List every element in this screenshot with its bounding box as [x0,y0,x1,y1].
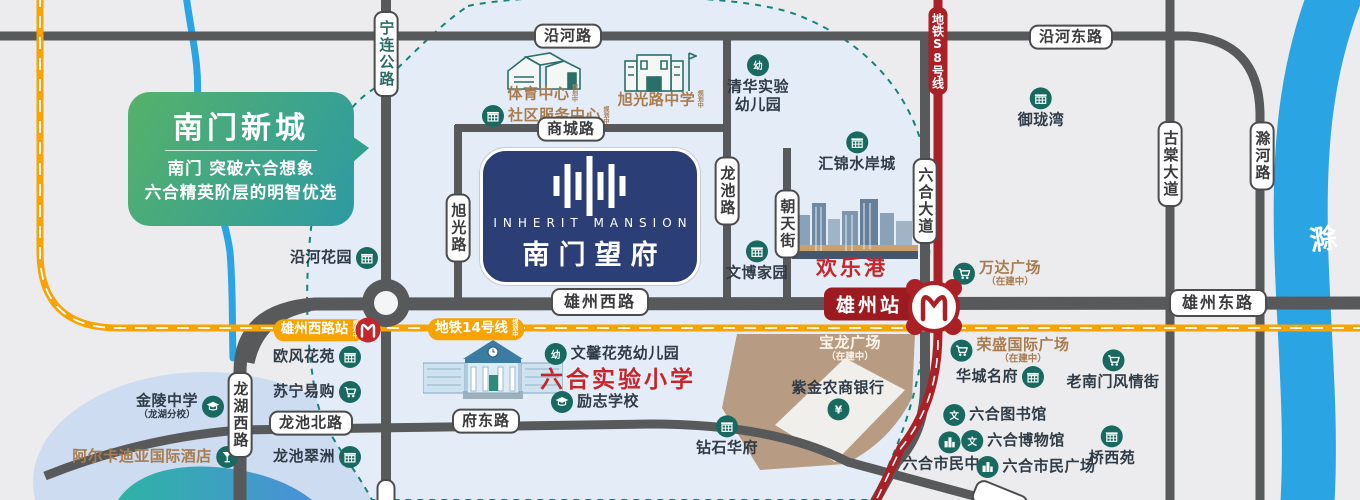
landmark-name: 旭光路中学 [618,91,696,108]
landmark-label-group: 励志学校 [577,393,639,410]
landmark-name: 文馨花苑幼儿园 [571,345,680,362]
landmark-label-group: 六合实验小学 [540,367,696,393]
road-label: 龙湖西路 [228,372,253,458]
kindergarten-icon: 幼 [747,54,769,76]
landmark-name: 六合博物馆 [987,432,1065,449]
map-landmark: 幼清华实验幼儿园 [727,54,789,114]
landmark-label-group: 龙池翠洲 [273,448,335,465]
map-landmark: 沿河花园 [290,247,378,269]
landmark-name-line2: 幼儿园 [735,97,782,114]
map-landmark: 华城名府 [956,366,1044,388]
metro-station-icon-small [355,317,382,344]
landmark-name: 桥西苑 [1089,449,1136,466]
landmark-label: 宝龙广场 [819,335,881,352]
landmark-name: 荣盛国际广场 [976,337,1069,354]
landmark-label-group: 六合博物馆 [987,432,1065,449]
landmark-label-group: 荣盛国际广场（在建中） [976,337,1069,366]
building-icon [339,346,361,368]
landmark-name: 华城名府 [956,368,1018,385]
landmark-label-group: 御珑湾 [1018,111,1065,128]
map-landmark: 六合实验小学 [540,367,696,393]
location-map: 南门新城 南门 突破六合想象 六合精英阶层的明智优选 INHERIT MANSI… [0,0,1360,500]
landmark-name: 金陵中学 [136,393,198,410]
landmark-label-group: 欢乐港 [816,256,888,280]
road-label: 滁河路 [1250,122,1275,191]
landmark-label: 励志学校 [577,393,639,410]
landmark-label: 六合实验小学 [540,367,696,393]
landmark-label-group: 体育中心规划中 [507,85,576,102]
landmark-name: 紫金农商银行 [791,379,884,396]
road-label: 朝天街 [775,190,800,259]
logo-en-name: INHERIT MANSION [487,216,692,230]
landmark-name: 万达广场 [979,260,1041,277]
map-landmark: 欢乐港 [816,256,888,280]
landmark-subtext: （在建中） [826,353,874,363]
map-landmark: 紫金农商银行¥ [791,379,884,420]
landmark-label-group: 六合图书馆 [969,406,1047,423]
xiongzhou-station-label: 雄州站 [824,288,914,321]
metro-station-icon [903,276,965,338]
road-label: 沿河东路 [1029,25,1113,50]
landmark-label-group: 苏宁易购 [273,383,335,400]
road-label: 沿河路 [534,24,602,49]
landmark-name: 体育中心 [507,85,569,102]
road-label: 古棠大道 [1158,121,1183,207]
metro-s8-label: 地铁S8号线 [929,7,948,95]
civic-icon [938,431,960,453]
landmark-name: 御珑湾 [1018,111,1065,128]
landmark-label: 六合图书馆 [969,406,1047,423]
landmark-name: 六合图书馆 [969,406,1047,423]
road-label: 雄州西路 [551,288,649,316]
landmark-label: 欢乐港 [816,256,888,280]
landmark-label-group: 桥西苑 [1089,449,1136,466]
landmark-label: 六合博物馆 [987,432,1065,449]
landmark-subtext: （在建中） [999,355,1047,365]
yuan-icon: ¥ [827,399,849,421]
landmark-name: 文博家园 [726,264,788,281]
landmark-name: 汇锦水岸城 [818,155,896,172]
kindergarten-icon: 幼 [545,343,567,365]
landmark-label: 清华实验 [727,78,789,95]
landmark-name: 阿尔卡迪亚国际酒店 [72,448,212,465]
landmark-name: 六合市民广场 [1002,458,1095,475]
map-landmark: 幼文馨花苑幼儿园 [545,343,680,365]
svg-text:文: 文 [949,410,960,422]
landmark-label: 荣盛国际广场 [976,337,1069,354]
headline-bubble: 南门新城 南门 突破六合想象 六合精英阶层的明智优选 [128,92,354,226]
landmark-label: 沿河花园 [290,249,352,266]
map-landmark: 阿尔卡迪亚国际酒店 [72,446,238,468]
building-icon [716,415,738,437]
planned-tag: 规划中 [696,90,702,108]
landmark-label-group: 清华实验幼儿园 [727,78,789,114]
landmark-name: 欢乐港 [816,256,888,280]
river-label: 滁 [1307,216,1339,258]
road-label: 雄州东路 [1169,289,1267,317]
map-landmark: 苏宁易购 [273,381,361,403]
wen-icon: 文 [943,404,965,426]
landmark-label-group: 华城名府 [956,368,1018,385]
landmark-label: 紫金农商银行 [791,379,884,396]
landmark-name: 苏宁易购 [273,383,335,400]
civic-icon [976,456,998,478]
landmark-name: 龙池翠洲 [273,448,335,465]
map-landmark: 金陵中学（龙湖分校） [136,393,224,422]
landmark-name: 沿河花园 [290,249,352,266]
road-label: 宁连公路 [374,11,399,97]
landmark-label-group: 老南门风情街 [1066,373,1159,390]
landmark-name: 清华实验 [727,78,789,95]
map-landmark: 汇锦水岸城 [818,131,896,172]
building-icon [1030,87,1052,109]
building-icon [1022,366,1044,388]
landmark-label-group: 紫金农商银行 [791,379,884,396]
landmark-label: 华城名府 [956,368,1018,385]
landmark-label-group: 阿尔卡迪亚国际酒店 [72,448,212,465]
cap-icon [202,396,224,418]
metro-line14-label: 地铁14号线规划中 [428,318,524,340]
bubble-title: 南门新城 [173,114,309,144]
cap-icon [551,391,573,413]
cart-icon [339,381,361,403]
bubble-divider [165,150,317,151]
road-label: 旭光路 [446,194,471,263]
road-label: 府东路 [452,409,520,434]
landmark-name: 钻石华府 [696,439,758,456]
landmark-label-group: 汇锦水岸城 [818,155,896,172]
landmark-label-group: 文博家园 [726,264,788,281]
landmark-name: 六合实验小学 [540,367,696,393]
landmark-label-group: 钻石华府 [696,439,758,456]
landmark-label: 桥西苑 [1089,449,1136,466]
landmark-label: 体育中心规划中 [507,85,576,102]
landmark-label: 文博家园 [726,264,788,281]
building-icon [746,240,768,262]
landmark-label-group: 沿河花园 [290,249,352,266]
logo-cn-name: 南门望府 [514,233,667,272]
building-icon [846,131,868,153]
building-icon [1101,425,1123,447]
landmark-label-group: 文馨花苑幼儿园 [571,345,680,362]
building-icon [339,446,361,468]
bubble-tail [352,136,369,163]
landmark-label: 文馨花苑幼儿园 [571,345,680,362]
map-landmark: 欧风花苑 [273,346,361,368]
map-landmark: 荣盛国际广场（在建中） [950,337,1069,366]
map-landmark: 龙池翠洲 [273,446,361,468]
road-label: 龙池北路 [269,411,353,436]
landmark-label-group: 旭光路中学规划中 [618,91,703,108]
landmark-label: 御珑湾 [1018,111,1065,128]
landmark-label-group: 金陵中学（龙湖分校） [136,393,198,422]
landmark-label-group: 万达广场（在建中） [979,260,1041,289]
metro-label-text: 地铁14号线 [435,320,508,338]
landmark-label: 龙池翠洲 [273,448,335,465]
road-label: 六合大道 [913,158,938,244]
map-landmark: 老南门风情街 [1066,349,1159,390]
svg-text:¥: ¥ [834,404,842,417]
landmark-label: 钻石华府 [696,439,758,456]
map-landmark: 万达广场（在建中） [953,260,1041,289]
roundabout-center [374,291,398,315]
landmark-label: 六合市民广场 [1002,458,1095,475]
landmark-label: 金陵中学 [136,393,198,410]
planned-tag: 规划中 [571,84,577,102]
planned-tag: 规划中 [511,319,517,337]
map-landmark: 励志学校 [551,391,639,413]
metro-line14-label: 雄州西路站规划中 [274,319,365,341]
metro-label-text: 雄州西路站 [281,321,349,339]
project-logo-card: INHERIT MANSION 南门望府 [480,148,700,285]
landmark-name: 老南门风情街 [1066,373,1159,390]
map-landmark: 钻石华府 [696,415,758,456]
map-landmark: 文六合图书馆 [943,404,1047,426]
road-label [377,479,396,500]
svg-text:幼: 幼 [551,349,560,361]
map-landmark: 宝龙广场（在建中） [819,335,881,364]
landmark-label: 万达广场 [979,260,1041,277]
inherit-mansion-logo-mark [531,156,649,216]
landmark-label: 欧风花苑 [273,348,335,365]
map-landmark: 六合市民广场 [976,456,1095,478]
building-icon [482,105,504,127]
landmark-name: 宝龙广场 [819,335,881,352]
landmark-name: 欧风花苑 [273,348,335,365]
landmark-name: 励志学校 [577,393,639,410]
map-landmark: 御珑湾 [1018,87,1065,128]
landmark-label-group: 宝龙广场（在建中） [819,335,881,364]
xuguang-school-illustration [623,51,697,95]
building-icon [356,247,378,269]
cart-icon [950,340,972,362]
cart-icon [1102,349,1124,371]
road-label: 商城路 [537,117,605,142]
landmark-label: 老南门风情街 [1066,373,1159,390]
svg-text:幼: 幼 [753,60,762,72]
map-landmark: 桥西苑 [1089,425,1136,466]
landmark-label: 阿尔卡迪亚国际酒店 [72,448,212,465]
landmark-label-group: 欧风花苑 [273,348,335,365]
landmark-label: 苏宁易购 [273,383,335,400]
landmark-subtext: （在建中） [986,278,1034,288]
map-landmark: 体育中心规划中 [507,85,576,102]
landmark-label: 汇锦水岸城 [818,155,896,172]
happy-port-cityscape [792,197,918,259]
landmark-label-group: 六合市民广场 [1002,458,1095,475]
road-label: 龙池路 [715,157,740,226]
landmark-label: 旭光路中学规划中 [618,91,703,108]
landmark-subtext: （龙湖分校） [138,411,195,421]
map-landmark: 旭光路中学规划中 [618,91,703,108]
bubble-slogan: 南门 突破六合想象 六合精英阶层的明智优选 [145,157,338,205]
